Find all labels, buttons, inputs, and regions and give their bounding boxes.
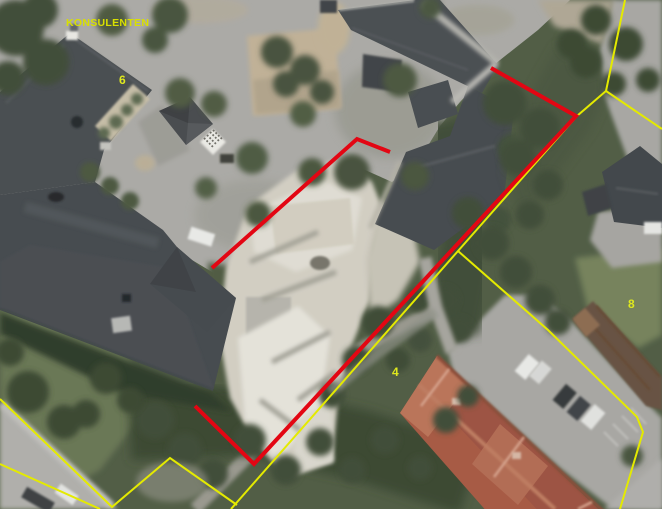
svg-text:KONSULENTEN: KONSULENTEN [66, 17, 149, 29]
svg-text:6: 6 [119, 73, 126, 87]
svg-text:4: 4 [392, 365, 399, 379]
svg-text:8: 8 [628, 297, 635, 311]
